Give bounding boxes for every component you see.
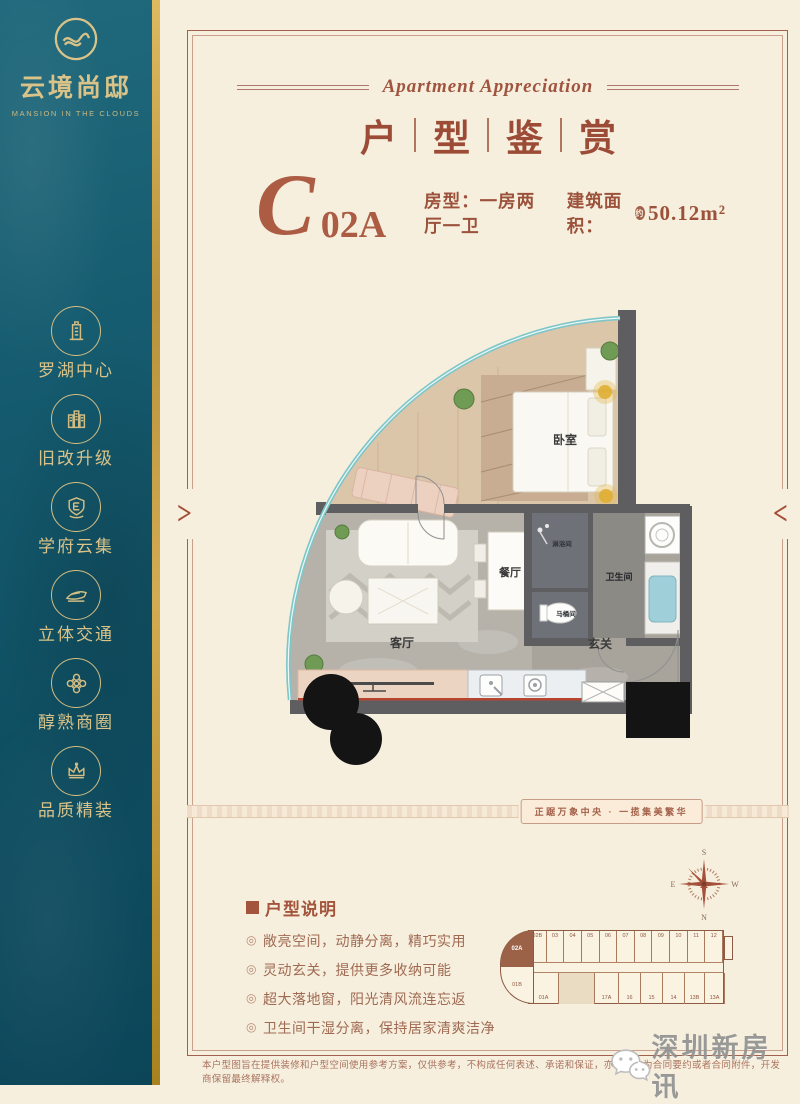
keyplan-unit-cell: 07 xyxy=(617,931,635,962)
column xyxy=(626,682,690,738)
slogan-label: 正踞万象中央 · 一揽集美繁华 xyxy=(521,799,703,824)
notes-square-bullet xyxy=(246,901,259,914)
header-ornament-row: Apartment Appreciation xyxy=(187,76,789,98)
wechat-icon xyxy=(608,1047,652,1083)
keyplan-bottom-row: 01A17A16151413B13A xyxy=(529,972,723,1004)
room-label-bathroom: 卫生间 xyxy=(605,571,632,582)
column xyxy=(330,713,382,765)
sidebar-item-renewal-upgrade[interactable]: 旧改升级 xyxy=(0,394,152,467)
approx-badge: 约 xyxy=(635,206,645,220)
circle-bullet-icon: ◎ xyxy=(246,960,257,978)
plant xyxy=(335,525,349,539)
crown-icon xyxy=(51,746,101,796)
keyplan-unit-cell: 09 xyxy=(652,931,670,962)
compass-left: E xyxy=(671,880,676,889)
keyplan-appendage xyxy=(724,936,733,960)
keyplan-unit-cell: 05 xyxy=(582,931,600,962)
keyplan-unit-cell: 04 xyxy=(564,931,582,962)
unit-title-row: C 02A 房型：一房两厅一卫 建筑面积： 约 50.12 m² xyxy=(256,168,726,244)
watermark-text: 深圳新房讯 xyxy=(652,1026,800,1104)
circle-bullet-icon: ◎ xyxy=(246,1018,257,1036)
keyplan: 02B03040506070809101112 01A17A16151413B1… xyxy=(498,926,738,1014)
keyplan-core xyxy=(559,973,595,1004)
sidebar-item-commercial[interactable]: 醇熟商圈 xyxy=(0,658,152,731)
compass-top: S xyxy=(702,848,706,857)
keyplan-unit-cell: 01B xyxy=(501,967,533,1003)
compass-rose-icon: S E W N xyxy=(666,846,742,922)
keyplan-unit-cell: 03 xyxy=(547,931,565,962)
prev-arrow[interactable]: > xyxy=(175,489,194,539)
sink xyxy=(649,576,676,622)
sidebar-item-fine-decoration[interactable]: 品质精装 xyxy=(0,746,152,819)
unit-number: 02A xyxy=(321,208,386,242)
floor-plan: 卧室 餐厅 客厅 玄关 淋浴间 马桶间 卫生间 xyxy=(268,292,708,764)
ornament-line-left xyxy=(237,85,369,90)
keyplan-unit-cell: 06 xyxy=(600,931,618,962)
unit-area-value: 50.12 xyxy=(648,201,700,226)
keyplan-unit-cell: 16 xyxy=(619,973,641,1004)
sidebar-menu: 罗湖中心 旧改升级 学府云集 立体交通 醇熟商圈 xyxy=(0,306,152,834)
shower-room xyxy=(532,513,588,588)
unit-layout: 房型：一房两厅一卫 xyxy=(424,188,545,238)
notes-title: 户型说明 xyxy=(265,895,337,920)
room-label-entry: 玄关 xyxy=(588,636,612,651)
keyplan-top-row: 02B03040506070809101112 xyxy=(529,931,723,963)
keyplan-unit-cell: 13A xyxy=(705,973,725,1004)
train-icon xyxy=(51,570,101,620)
room-label-dining: 餐厅 xyxy=(498,565,521,579)
ornament-line-right xyxy=(607,85,739,90)
unit-area-unit: m² xyxy=(700,201,726,226)
keyplan-unit-cell: 14 xyxy=(663,973,685,1004)
room-label-toilet: 马桶间 xyxy=(556,609,576,618)
page-title: 户 型 鉴 赏 xyxy=(187,108,789,162)
sidebar-item-luohu-center[interactable]: 罗湖中心 xyxy=(0,306,152,379)
wave-circle-icon xyxy=(53,16,99,62)
brand-subtitle: MANSION IN THE CLOUDS xyxy=(0,109,152,118)
room-label-living: 客厅 xyxy=(389,635,414,650)
plant xyxy=(601,342,619,360)
side-table xyxy=(329,580,363,614)
title-separator xyxy=(414,118,416,152)
unit-area-label: 建筑面积： xyxy=(567,188,634,238)
shield-e-icon xyxy=(51,482,101,532)
title-separator xyxy=(560,118,562,152)
keyplan-unit-cell: 08 xyxy=(635,931,653,962)
sidebar: 云境尚邸 MANSION IN THE CLOUDS 罗湖中心 旧改升级 学府云… xyxy=(0,0,160,1085)
keyplan-unit-cell: 10 xyxy=(670,931,688,962)
keyplan-unit-cell: 15 xyxy=(641,973,663,1004)
poster-page: { "sidebar": { "logo": { "name": "云境尚邸",… xyxy=(0,0,800,1085)
script-title: Apartment Appreciation xyxy=(383,76,594,98)
watermark: 深圳新房讯 xyxy=(608,1026,800,1104)
keyplan-unit-cell: 13B xyxy=(685,973,705,1004)
plant xyxy=(454,389,474,409)
title-separator xyxy=(487,118,489,152)
keyplan-unit-cell: 11 xyxy=(688,931,706,962)
room-label-bedroom: 卧室 xyxy=(553,432,577,447)
circle-bullet-icon: ◎ xyxy=(246,931,257,949)
keyplan-bulge: 02A 01B xyxy=(500,930,534,1004)
keyplan-highlight-02a: 02A xyxy=(501,931,533,967)
compass-right: W xyxy=(731,880,739,889)
keyplan-unit-cell: 12 xyxy=(705,931,723,962)
slogan-band: 正踞万象中央 · 一揽集美繁华 xyxy=(187,799,789,823)
next-arrow[interactable]: < xyxy=(771,489,790,539)
tower-icon xyxy=(51,306,101,356)
brand-name: 云境尚邸 xyxy=(0,68,152,104)
circle-bullet-icon: ◎ xyxy=(246,989,257,1007)
sidebar-item-transport[interactable]: 立体交通 xyxy=(0,570,152,643)
room-label-shower: 淋浴间 xyxy=(552,539,572,548)
flower-icon xyxy=(51,658,101,708)
brand-logo: 云境尚邸 MANSION IN THE CLOUDS xyxy=(0,16,152,118)
compass-bottom: N xyxy=(701,913,707,922)
gold-divider-stripe xyxy=(152,0,160,1085)
dining-chair xyxy=(474,580,486,598)
sidebar-item-schools[interactable]: 学府云集 xyxy=(0,482,152,555)
buildings-icon xyxy=(51,394,101,444)
unit-letter: C xyxy=(256,168,315,244)
note-item: ◎ 卫生间干湿分离，保持居家清爽洁净 xyxy=(246,1018,556,1038)
dining-chair xyxy=(474,544,486,562)
keyplan-unit-cell: 17A xyxy=(595,973,619,1004)
